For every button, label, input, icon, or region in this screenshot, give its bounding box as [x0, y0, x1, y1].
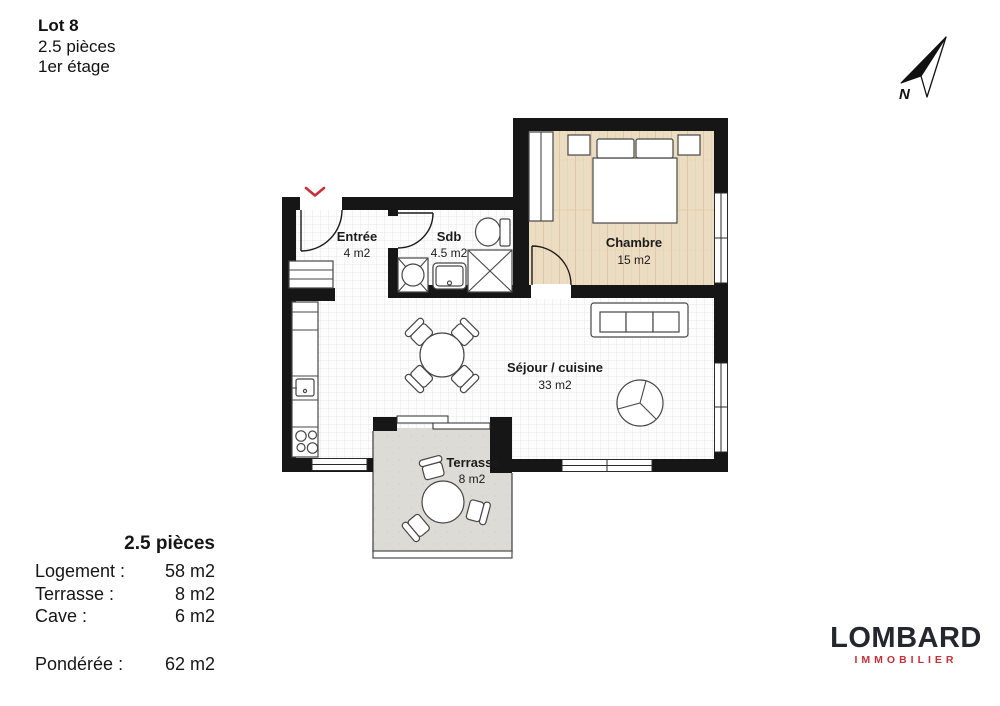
agency-tagline: IMMOBILIER — [827, 654, 985, 666]
legend-value: 8 m2 — [175, 583, 215, 606]
window-chambre-east — [715, 193, 728, 283]
wall — [513, 118, 529, 298]
terrace-table — [422, 481, 464, 523]
wall — [388, 210, 398, 216]
room-label-sdb: Sdb — [437, 229, 462, 244]
washing-machine — [398, 258, 428, 292]
legend-value: 6 m2 — [175, 605, 215, 628]
north-arrow-icon: N — [899, 37, 946, 103]
bathroom-sink — [433, 263, 466, 289]
wall — [373, 417, 397, 431]
room-label-entree: Entrée — [337, 229, 377, 244]
legend-row-terrasse: Terrasse : 8 m2 — [35, 583, 215, 606]
room-area-sdb: 4.5 m2 — [431, 246, 468, 260]
nightstand-left — [568, 135, 590, 155]
window-sejour-east — [715, 363, 728, 452]
legend-label: Terrasse : — [35, 583, 114, 606]
wardrobe — [529, 132, 553, 221]
legend-row-logement: Logement : 58 m2 — [35, 560, 215, 583]
shower — [468, 250, 512, 292]
legend-label: Logement : — [35, 560, 125, 583]
room-label-terrasse: Terrasse — [446, 455, 499, 470]
area-legend: 2.5 pièces Logement : 58 m2 Terrasse : 8… — [35, 533, 215, 675]
floor-plan-page: Lot 8 2.5 pièces 1er étage — [0, 0, 1000, 706]
legend-title: 2.5 pièces — [35, 533, 215, 555]
window-kitchen-south — [312, 459, 367, 471]
room-label-chambre: Chambre — [606, 235, 662, 250]
sofa — [591, 303, 688, 337]
entrance-chevron-icon — [306, 188, 324, 196]
legend-row-cave: Cave : 6 m2 — [35, 605, 215, 628]
agency-name: LOMBARD — [827, 623, 985, 653]
toilet — [476, 218, 511, 246]
wall — [516, 118, 728, 131]
wall — [342, 197, 516, 210]
agency-logo: LOMBARD IMMOBILIER — [827, 623, 985, 666]
wall — [388, 248, 398, 298]
legend-value: 58 m2 — [165, 560, 215, 583]
legend-value: 62 m2 — [165, 653, 215, 676]
north-label: N — [899, 86, 911, 103]
dining-table — [420, 333, 464, 377]
room-area-sejour: 33 m2 — [538, 378, 572, 392]
room-label-sejour: Séjour / cuisine — [507, 360, 603, 375]
legend-label: Cave : — [35, 605, 87, 628]
entry-closet — [289, 261, 333, 288]
room-area-entree: 4 m2 — [344, 246, 371, 260]
round-armchair — [617, 380, 663, 426]
legend-row-ponderee: Pondérée : 62 m2 — [35, 653, 215, 676]
room-area-chambre: 15 m2 — [617, 253, 651, 267]
wall — [282, 288, 335, 301]
window-sejour-south — [562, 460, 652, 472]
chambre-door-opening — [531, 284, 571, 299]
room-area-terrasse: 8 m2 — [459, 472, 486, 486]
nightstand-right — [678, 135, 700, 155]
legend-label: Pondérée : — [35, 653, 123, 676]
